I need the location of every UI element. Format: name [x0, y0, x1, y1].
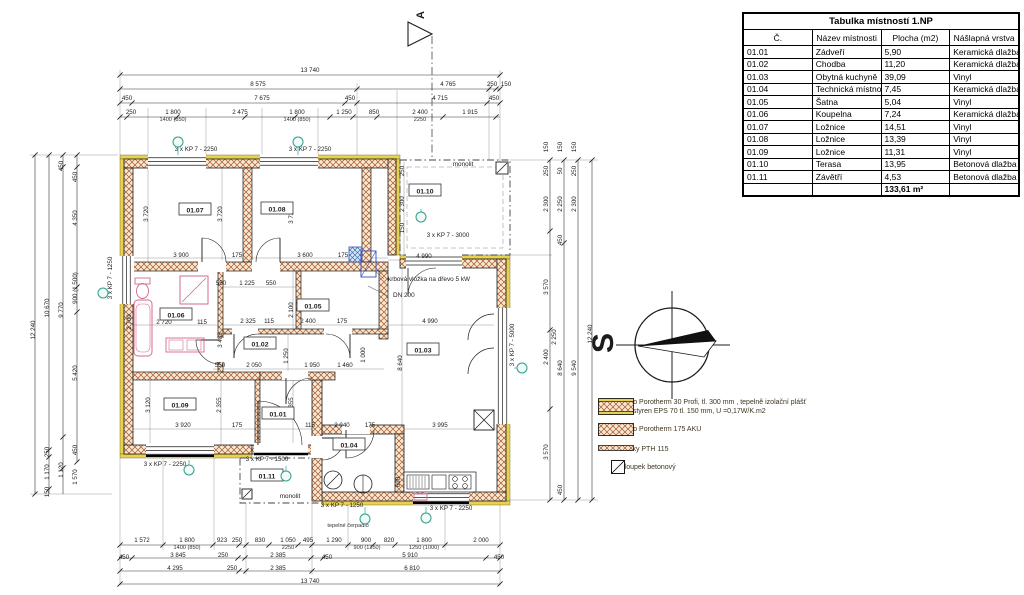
table-title: Tabulka místností 1.NP — [744, 14, 1019, 30]
partition — [255, 380, 260, 454]
dim-label: 2 400 — [543, 349, 550, 365]
room-label: 01.07 — [186, 208, 203, 215]
dim-label: 450 — [494, 554, 505, 561]
table-cell: 01.04 — [744, 83, 813, 96]
dim-label: 450 — [119, 554, 130, 561]
dim-label: 50 — [557, 167, 564, 174]
dim-label: 3 995 — [432, 422, 448, 429]
dim-label: 1 250 — [336, 109, 352, 116]
dim-label: 2 050 — [246, 362, 262, 369]
reference-marker — [293, 137, 303, 147]
dim-label: 3 600 — [297, 252, 313, 259]
dim-label: 250 — [399, 165, 406, 176]
door-opening — [232, 328, 258, 335]
room-label: 01.10 — [416, 189, 433, 196]
table-cell: Vinyl — [950, 146, 1019, 159]
room-label: 01.01 — [269, 412, 286, 419]
room-label: 01.08 — [268, 207, 285, 214]
table-cell: Technická místnost — [812, 83, 881, 96]
room-label: 01.11 — [259, 474, 276, 481]
table-total-row: 133,61 m² — [744, 183, 1019, 196]
reference-marker — [173, 137, 183, 147]
dim-label: 150 — [557, 141, 564, 152]
window-label: 3 x KP 7 - 2250 — [144, 461, 187, 468]
dim-label: 450 — [345, 95, 356, 102]
dim-label: 923 — [217, 537, 228, 544]
table-row: 01.03Obytná kuchyně39,09Vinyl — [744, 71, 1019, 84]
drawing-sheet: { "table": { "title": "Tabulka místností… — [0, 0, 1024, 595]
table-cell: Obytná kuchyně — [812, 71, 881, 84]
dim-label: 8 640 — [397, 355, 404, 371]
table-cell: 7,24 — [881, 108, 950, 121]
washbasin-bowl — [187, 340, 201, 350]
table-cell: Ložnice — [812, 133, 881, 146]
dim-label: 8 575 — [250, 81, 266, 88]
room-schedule-table: Tabulka místností 1.NP Č. Název místnost… — [742, 12, 1020, 197]
dim-label: 250 — [543, 165, 550, 176]
dim-label: 2 000 — [473, 537, 489, 544]
dim-label: 6 810 — [404, 565, 420, 572]
dim-label: 250 — [487, 81, 498, 88]
table-cell: 01.01 — [744, 46, 813, 59]
compass-rose: S — [587, 291, 730, 399]
table-cell: 01.05 — [744, 96, 813, 109]
dim-label: 250 — [126, 109, 137, 116]
table-row: 01.06Koupelna7,24Keramická dlažba — [744, 108, 1019, 121]
dim-label: 450 — [72, 171, 79, 182]
table-row: 01.09Ložnice11,31Vinyl — [744, 146, 1019, 159]
reference-marker — [98, 288, 108, 298]
dim-label: 450 — [58, 160, 65, 171]
reference-marker — [517, 363, 527, 373]
annotation: monolit — [280, 493, 301, 500]
legend-swatch-aku-wall — [598, 423, 634, 436]
dim-label: 250 — [218, 552, 229, 559]
dim-label: 1400 (850) — [159, 117, 186, 123]
table-cell: 11,31 — [881, 146, 950, 159]
dim-label: 3 920 — [175, 422, 191, 429]
table-cell: Vinyl — [950, 71, 1019, 84]
dim-label: 4 990 — [416, 253, 432, 260]
dim-label: 2 400 — [412, 109, 428, 116]
room-label: 01.09 — [171, 403, 188, 410]
dim-label: 175 — [337, 318, 348, 325]
dim-label: 3 570 — [543, 444, 550, 460]
dim-label: 550 — [215, 362, 226, 369]
dim-label: 150 — [44, 486, 51, 497]
dim-label: 9 540 — [571, 360, 578, 376]
table-cell: Keramická dlažba — [950, 83, 1019, 96]
dim-label: 2 325 — [240, 318, 256, 325]
legend-swatch-partition — [598, 445, 634, 452]
window-label: 3 x KP 7 - 2250 — [430, 505, 473, 512]
dim-label: 1 950 — [304, 362, 320, 369]
legend-item-porotherm30: Zdivo Porotherm 30 Profi, tl. 300 mm , t… — [598, 398, 806, 416]
dim-label: 900 (1 500) — [72, 272, 79, 304]
dim-label: 2 400 — [300, 318, 316, 325]
dim-label: 2 385 — [270, 552, 286, 559]
reference-marker — [360, 514, 370, 524]
dim-label: 13 740 — [301, 578, 320, 585]
dim-label: 1 290 — [326, 537, 342, 544]
dim-label: 1 800 — [416, 537, 432, 544]
reference-marker — [416, 212, 426, 222]
dim-label: 4 990 — [422, 318, 438, 325]
dim-label: 1 000 — [360, 347, 367, 363]
room-label: 01.04 — [340, 443, 357, 450]
dim-label: 2 355 — [216, 397, 223, 413]
table-row: 01.10Terasa13,95Betonová dlažba — [744, 158, 1019, 171]
legend-label-line1: Zdivo Porotherm 30 Profi, tl. 300 mm , t… — [620, 398, 806, 407]
table-row: 01.07Ložnice14,51Vinyl — [744, 121, 1019, 134]
legend-swatch-exterior-wall — [598, 398, 634, 415]
dim-label: 4 715 — [432, 95, 448, 102]
annotation: DN 200 — [393, 292, 415, 299]
dim-label: 1 050 — [280, 537, 296, 544]
dim-label: 3 120 — [145, 397, 152, 413]
dim-label: 450 — [557, 234, 564, 245]
washbasin-bowl — [169, 340, 183, 350]
dim-label: 450 — [557, 484, 564, 495]
legend-swatch-column — [611, 460, 625, 474]
dim-label: 175 — [338, 252, 349, 259]
dim-label: 1 120 — [58, 462, 65, 478]
room-label: 01.05 — [304, 304, 321, 311]
dim-label: 115 — [197, 319, 207, 326]
dim-label: 2 300 — [399, 196, 406, 212]
window-swing-arc — [468, 314, 494, 340]
dim-label: 150 — [501, 81, 512, 88]
dim-label: 900 — [361, 537, 372, 544]
table-cell: Šatna — [812, 96, 881, 109]
dim-label: 115 — [264, 318, 274, 325]
reference-marker — [421, 513, 431, 523]
dim-label: 1 250 — [283, 348, 290, 364]
partition — [362, 168, 371, 262]
dim-label: 2 475 — [232, 109, 248, 116]
dim-label: 2 300 — [543, 196, 550, 212]
table-cell: 01.08 — [744, 133, 813, 146]
dim-label: 1 915 — [462, 109, 478, 116]
table-cell: Vinyl — [950, 133, 1019, 146]
dim-label: 3 845 — [170, 552, 186, 559]
dim-label: 2250 — [282, 545, 294, 551]
dim-label: 1 800 — [165, 109, 181, 116]
dim-label: 900 (1350) — [353, 545, 380, 551]
dim-label: 1 800 — [289, 109, 305, 116]
dim-label: 450 — [489, 95, 500, 102]
legend-item-sloupek: Sloupek betonový — [611, 460, 676, 472]
washing-machine-mark — [327, 474, 339, 486]
table-cell: 01.03 — [744, 71, 813, 84]
dim-label: 2 250 — [551, 329, 558, 345]
table-cell: 11,20 — [881, 58, 950, 71]
wall-segment — [124, 168, 133, 454]
table-cell: 01.02 — [744, 58, 813, 71]
dim-label: 3 720 — [217, 206, 224, 222]
dim-label: 2 700 — [126, 314, 133, 330]
dim-label: 2250 — [414, 117, 426, 123]
table-total-area: 133,61 m² — [881, 183, 950, 196]
door-opening — [311, 436, 323, 458]
dim-label: 1 170 — [44, 464, 51, 480]
dim-label: 550 — [266, 280, 277, 287]
dim-label: 495 — [303, 537, 314, 544]
shower-diagonal — [182, 278, 206, 302]
dim-label: 1 570 — [72, 469, 79, 485]
table-cell: 01.09 — [744, 146, 813, 159]
table-cell: Vinyl — [950, 96, 1019, 109]
dim-label: 9 770 — [58, 302, 65, 318]
table-cell: Chodba — [812, 58, 881, 71]
table-cell — [744, 183, 813, 196]
door-swing-arc — [326, 334, 350, 358]
terrace-outline — [400, 160, 510, 255]
section-label: A — [415, 11, 427, 19]
dim-label: 1 572 — [134, 537, 150, 544]
dim-label: 12 240 — [30, 320, 37, 339]
dim-label: 250 — [44, 446, 51, 457]
dim-label: 175 — [232, 422, 243, 429]
dim-label: 1 460 — [337, 362, 353, 369]
dim-label: 2 300 — [571, 196, 578, 212]
window-label: 3 x KP 7 - 3000 — [427, 232, 470, 239]
dim-label: 3 900 — [173, 252, 189, 259]
eps-band — [120, 159, 124, 454]
window-label: 3 x KP 7 - 2250 — [289, 146, 332, 153]
table-cell: 5,04 — [881, 96, 950, 109]
table-cell: 4,53 — [881, 171, 950, 184]
dim-label: 450 — [72, 444, 79, 455]
table-cell: 13,39 — [881, 133, 950, 146]
partition — [133, 372, 260, 380]
table-cell: Betonová dlažba — [950, 171, 1019, 184]
table-cell: Keramická dlažba — [950, 58, 1019, 71]
dim-label: 4 765 — [440, 81, 456, 88]
fireplace-flue — [349, 247, 362, 262]
door-swing-arc — [256, 238, 280, 262]
dim-label: 115 — [305, 422, 315, 429]
legend-item-pth115: Příčky PTH 115 — [598, 445, 669, 454]
window-label: 3 x KP 7 - 5000 — [509, 323, 516, 366]
dim-label: 250 — [571, 165, 578, 176]
dim-label: 820 — [384, 537, 395, 544]
dim-label: 4 350 — [72, 210, 79, 226]
table-cell: 5,90 — [881, 46, 950, 59]
dim-label: 5 420 — [72, 365, 79, 381]
dim-label: 150 — [543, 141, 550, 152]
table-cell: 01.07 — [744, 121, 813, 134]
table-row: 01.08Ložnice13,39Vinyl — [744, 133, 1019, 146]
table-row: 01.04Technická místnost7,45Keramická dla… — [744, 83, 1019, 96]
table-cell: 14,51 — [881, 121, 950, 134]
bathtub — [134, 300, 152, 356]
dim-label: 13 740 — [301, 67, 320, 74]
window-swing-arc — [468, 348, 494, 374]
table-cell — [812, 183, 881, 196]
dim-label: 1 225 — [239, 280, 255, 287]
table-cell: Ložnice — [812, 121, 881, 134]
col-header-name: Název místnosti — [812, 30, 881, 46]
table-row: 01.02Chodba11,20Keramická dlažba — [744, 58, 1019, 71]
dim-label: 175 — [365, 422, 376, 429]
legend-label-line2: polystyren EPS 70 tl. 150 mm, U =0,17W/K… — [620, 407, 806, 416]
dim-label: 1 800 — [179, 537, 195, 544]
table-cell: Koupelna — [812, 108, 881, 121]
compass-north-label: S — [587, 333, 620, 353]
table-cell: Keramická dlažba — [950, 46, 1019, 59]
dim-label: 1400 (850) — [173, 545, 200, 551]
dim-label: 7 675 — [254, 95, 270, 102]
window-label: 3 x KP 7 - 2250 — [175, 146, 218, 153]
dim-label: 3 570 — [543, 279, 550, 295]
dim-label: 1250 (1000) — [409, 545, 439, 551]
dim-label: 550 — [216, 280, 227, 287]
room-label: 01.03 — [414, 348, 431, 355]
col-header-number: Č. — [744, 30, 813, 46]
dim-label: 150 — [399, 222, 406, 233]
dim-label: 830 — [255, 537, 266, 544]
annotation: tepelné čerpadlo — [327, 523, 368, 529]
col-header-floor: Nášlapná vrstva — [950, 30, 1019, 46]
dim-label: 3 720 — [143, 206, 150, 222]
reference-marker — [281, 471, 291, 481]
reference-marker — [184, 465, 194, 475]
annotation: monolit — [453, 161, 474, 168]
table-cell: 01.10 — [744, 158, 813, 171]
table-cell — [950, 183, 1019, 196]
dim-label: 1400 (850) — [283, 117, 310, 123]
dim-label: 2 040 — [334, 422, 350, 429]
door-swing-arc — [202, 238, 226, 262]
dim-label: 2 100 — [288, 302, 295, 318]
dim-label: 150 — [571, 141, 578, 152]
annotation: krbová vložka na dřevo 5 kW — [388, 276, 471, 283]
legend-item-porotherm175: Zdivo Porotherm 175 AKU — [598, 423, 701, 434]
dim-label: 450 — [322, 554, 333, 561]
window-label: 3 x KP 7 - 1250 — [321, 502, 364, 509]
dim-label: 175 — [232, 252, 243, 259]
table-cell: 13,95 — [881, 158, 950, 171]
dim-label: 8 640 — [557, 360, 564, 376]
partition — [243, 168, 252, 262]
table-row: 01.01Zádveří5,90Keramická dlažba — [744, 46, 1019, 59]
room-label: 01.06 — [167, 313, 184, 320]
dim-label: 450 — [122, 95, 133, 102]
table-row: 01.05Šatna5,04Vinyl — [744, 96, 1019, 109]
dim-label: 850 — [369, 109, 380, 116]
window-label: 3 x KP 7 - 1500 — [246, 456, 289, 463]
dim-label: 4 295 — [167, 565, 183, 572]
table-cell: Vinyl — [950, 121, 1019, 134]
dim-label: 2 385 — [270, 565, 286, 572]
bathtub-inner — [136, 304, 150, 352]
dim-label: 5 910 — [402, 552, 418, 559]
wall-segment — [388, 159, 396, 255]
table-cell: Terasa — [812, 158, 881, 171]
table-cell: Ložnice — [812, 146, 881, 159]
dim-label: 2 250 — [557, 196, 564, 212]
table-cell: 01.11 — [744, 171, 813, 184]
col-header-area: Plocha (m2) — [881, 30, 950, 46]
dim-label: 250 — [232, 537, 243, 544]
dim-label: 3 485 — [217, 332, 224, 348]
table-row: 01.11Závětří4,53Betonová dlažba — [744, 171, 1019, 184]
table-cell: 7,45 — [881, 83, 950, 96]
dim-label: 10 670 — [44, 298, 51, 317]
table-cell: Keramická dlažba — [950, 108, 1019, 121]
table-cell: Betonová dlažba — [950, 158, 1019, 171]
dim-label: 600 — [395, 476, 402, 487]
table-cell: 39,09 — [881, 71, 950, 84]
dim-label: 250 — [227, 565, 238, 572]
table-header-row: Č. Název místnosti Plocha (m2) Nášlapná … — [744, 30, 1019, 46]
table-cell: Závětří — [812, 171, 881, 184]
toilet-bowl — [137, 284, 149, 299]
table-cell: 01.06 — [744, 108, 813, 121]
legend-label: Sloupek betonový — [620, 463, 676, 472]
section-marker-a: A — [408, 11, 432, 160]
room-label: 01.02 — [251, 342, 268, 349]
table-cell: Zádveří — [812, 46, 881, 59]
